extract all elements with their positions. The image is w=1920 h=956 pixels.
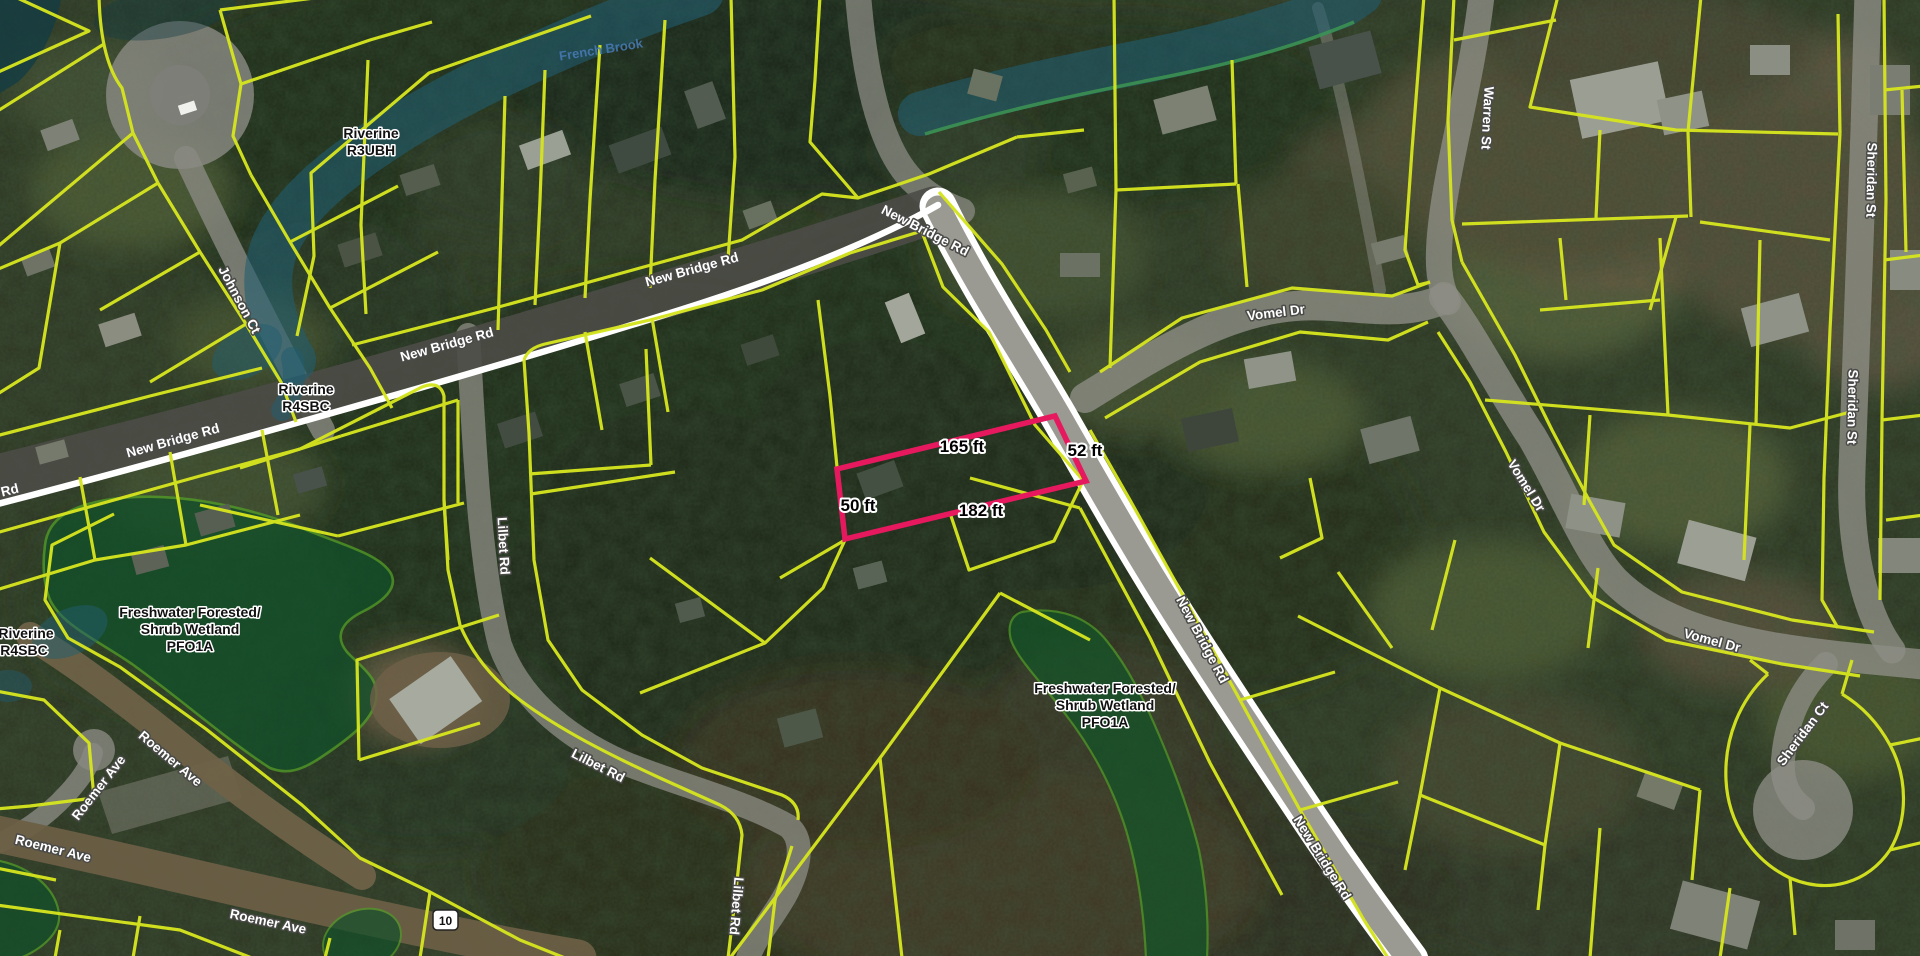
svg-text:165 ft: 165 ft	[940, 437, 985, 456]
svg-text:R3UBH: R3UBH	[347, 142, 395, 158]
svg-text:R4SBC: R4SBC	[0, 642, 47, 658]
svg-text:R4SBC: R4SBC	[282, 398, 329, 414]
svg-text:Lilbet Rd: Lilbet Rd	[494, 517, 512, 575]
svg-text:Shrub Wetland: Shrub Wetland	[1056, 697, 1155, 713]
svg-text:182 ft: 182 ft	[959, 501, 1004, 520]
svg-text:Riverine: Riverine	[343, 125, 398, 141]
svg-text:Shrub Wetland: Shrub Wetland	[141, 621, 240, 637]
svg-text:PFO1A: PFO1A	[1082, 714, 1129, 730]
svg-text:Riverine: Riverine	[278, 381, 333, 397]
svg-text:PFO1A: PFO1A	[167, 638, 214, 654]
svg-text:10: 10	[439, 914, 453, 928]
svg-text:Freshwater Forested/: Freshwater Forested/	[1034, 680, 1176, 696]
svg-text:52 ft: 52 ft	[1068, 441, 1103, 460]
svg-text:Freshwater Forested/: Freshwater Forested/	[119, 604, 261, 620]
svg-text:50 ft: 50 ft	[841, 496, 876, 515]
svg-text:Sheridan St: Sheridan St	[1844, 369, 1860, 445]
svg-text:Riverine: Riverine	[0, 625, 54, 641]
svg-text:Sheridan St: Sheridan St	[1863, 142, 1879, 218]
